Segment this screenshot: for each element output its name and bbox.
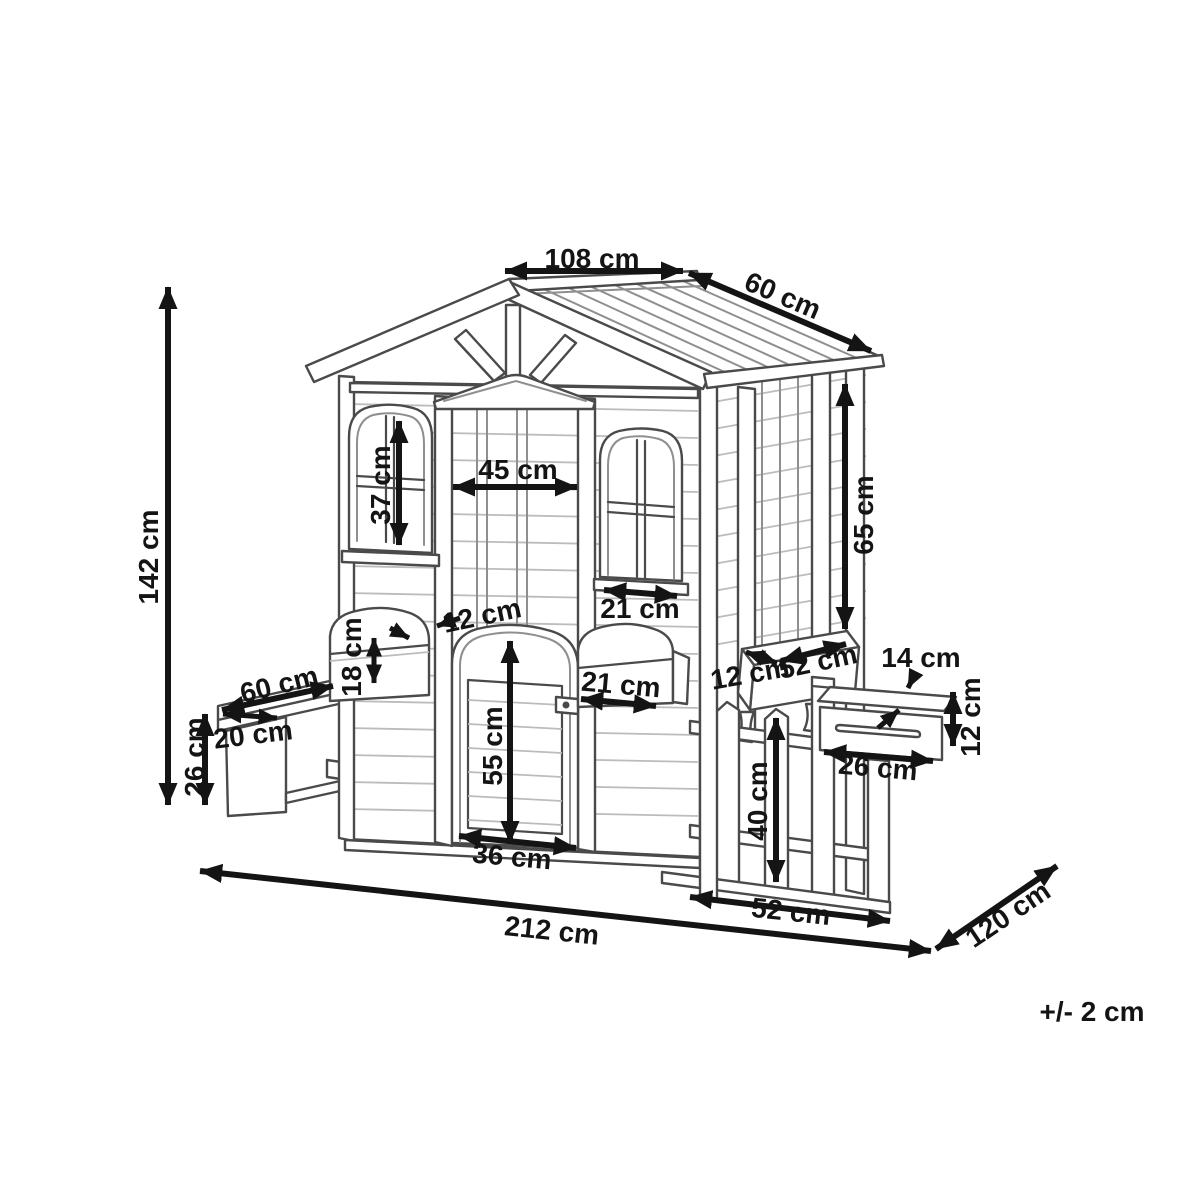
- dim-label-mailbox-height: 12 cm: [955, 677, 986, 756]
- door-panel: [452, 625, 578, 848]
- dim-label-front-window-height: 37 cm: [365, 445, 396, 524]
- porch-rear-post: [846, 355, 864, 894]
- side-wall-siding: [702, 375, 866, 647]
- window-right: [594, 429, 688, 596]
- planter-door-endcap: [673, 651, 689, 704]
- dim-label-bench-height: 26 cm: [179, 717, 210, 796]
- tolerance-note: +/- 2 cm: [1039, 996, 1144, 1027]
- dim-label-total-depth: 120 cm: [960, 875, 1056, 954]
- door-knob: [563, 702, 570, 709]
- porch-front-post: [700, 384, 717, 899]
- window-left-sill: [342, 551, 439, 566]
- dim-label-front-planter-height: 18 cm: [336, 617, 367, 696]
- dim-label-door-width: 36 cm: [471, 838, 553, 876]
- diagram-canvas: 108 cm 60 cm 142 cm 37 cm 45 cm 21 cm 12…: [0, 0, 1200, 1200]
- dim-label-door-height: 55 cm: [477, 706, 508, 785]
- dim-label-total-height: 142 cm: [133, 510, 164, 605]
- bench-lower-rail: [286, 781, 340, 803]
- truss-strut-left: [455, 330, 505, 381]
- truss-strut-right: [530, 335, 576, 383]
- dim-label-mailbox-depth: 14 cm: [881, 642, 960, 673]
- dim-label-door-frame-width: 45 cm: [478, 454, 557, 485]
- dim-arrow-mailbox-depth: [908, 672, 916, 688]
- dim-label-ridge-length: 108 cm: [545, 243, 640, 274]
- playhouse-line-drawing: 108 cm 60 cm 142 cm 37 cm 45 cm 21 cm 12…: [0, 0, 1200, 1200]
- king-post: [506, 305, 520, 380]
- dim-label-porch-opening-height: 65 cm: [848, 475, 879, 554]
- fence-picket-1: [716, 702, 739, 885]
- door-post-right: [578, 398, 595, 852]
- dim-label-side-window-width: 21 cm: [600, 593, 679, 624]
- dim-label-fence-height: 40 cm: [742, 761, 773, 840]
- side-rear-trim: [812, 364, 830, 649]
